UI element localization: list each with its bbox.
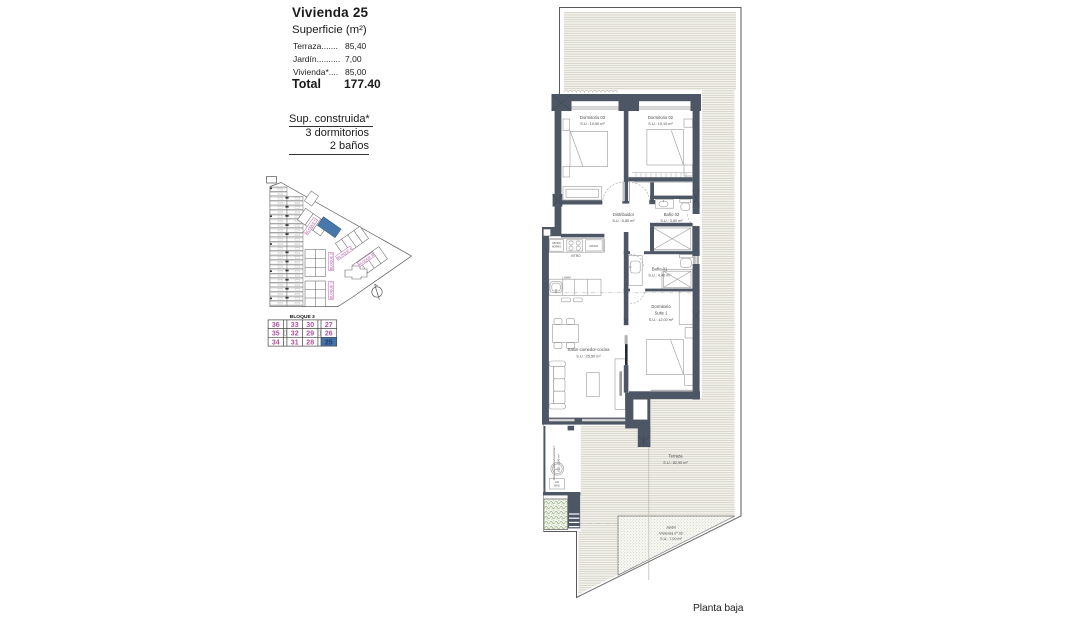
svg-text:Dormitorio 02: Dormitorio 02 — [648, 115, 674, 120]
svg-text:MAQ: MAQ — [554, 484, 559, 487]
svg-text:26: 26 — [325, 331, 333, 338]
svg-text:S.U.: 82,90 m²: S.U.: 82,90 m² — [663, 461, 688, 465]
svg-text:S.U.: 10,50 m²: S.U.: 10,50 m² — [580, 122, 605, 126]
svg-text:Baño 01: Baño 01 — [652, 267, 668, 272]
svg-text:34: 34 — [272, 339, 280, 346]
svg-text:33: 33 — [291, 322, 299, 329]
svg-text:VITRO: VITRO — [571, 254, 581, 258]
svg-text:Dormitorio: Dormitorio — [651, 304, 671, 309]
svg-text:Suite 1: Suite 1 — [654, 311, 668, 316]
svg-text:BLOQUE 2: BLOQUE 2 — [330, 253, 334, 270]
svg-text:Terraza: Terraza — [669, 454, 684, 459]
svg-text:S.U.: 4,40 m²: S.U.: 4,40 m² — [648, 274, 671, 278]
svg-text:S.U.: 12,00 m²: S.U.: 12,00 m² — [649, 318, 674, 322]
svg-text:Dormitorio 03: Dormitorio 03 — [580, 115, 606, 120]
svg-text:BLOQUE 3: BLOQUE 3 — [290, 314, 315, 320]
svg-text:BLOQUE 1: BLOQUE 1 — [330, 282, 334, 299]
svg-text:S.U.: 3,60 m²: S.U.: 3,60 m² — [660, 219, 683, 223]
svg-text:Jardín: Jardín — [666, 526, 676, 530]
svg-text:Vivienda nº 02: Vivienda nº 02 — [659, 531, 683, 535]
svg-text:Aseo lavadero/tendedero: Aseo lavadero/tendedero — [552, 445, 556, 480]
svg-text:FRIGO: FRIGO — [590, 244, 599, 248]
svg-text:S.U.: 7,00 m²: S.U.: 7,00 m² — [660, 537, 682, 541]
svg-text:Distribuidor: Distribuidor — [613, 212, 635, 217]
svg-text:Salón-comedor-cocina: Salón-comedor-cocina — [568, 347, 611, 352]
svg-text:25: 25 — [325, 339, 333, 346]
svg-text:36: 36 — [272, 322, 280, 329]
svg-text:29: 29 — [306, 331, 314, 338]
svg-text:BLAN: BLAN — [555, 468, 561, 471]
svg-text:S.U.: 25,50 m²: S.U.: 25,50 m² — [576, 355, 601, 359]
svg-text:30: 30 — [306, 322, 314, 329]
svg-text:31: 31 — [291, 339, 299, 346]
svg-text:LAV: LAV — [555, 481, 560, 484]
svg-text:27: 27 — [325, 322, 333, 329]
svg-text:S.U.: 10,10 m²: S.U.: 10,10 m² — [648, 122, 673, 126]
svg-text:28: 28 — [306, 339, 314, 346]
svg-text:S.U.: 5,80 m²: S.U.: 5,80 m² — [612, 219, 635, 223]
svg-text:Baño 02: Baño 02 — [664, 212, 680, 217]
svg-text:LAVAV.: LAVAV. — [563, 275, 572, 279]
svg-text:HORNO: HORNO — [552, 246, 561, 249]
svg-text:32: 32 — [291, 331, 299, 338]
svg-text:35: 35 — [272, 331, 280, 338]
